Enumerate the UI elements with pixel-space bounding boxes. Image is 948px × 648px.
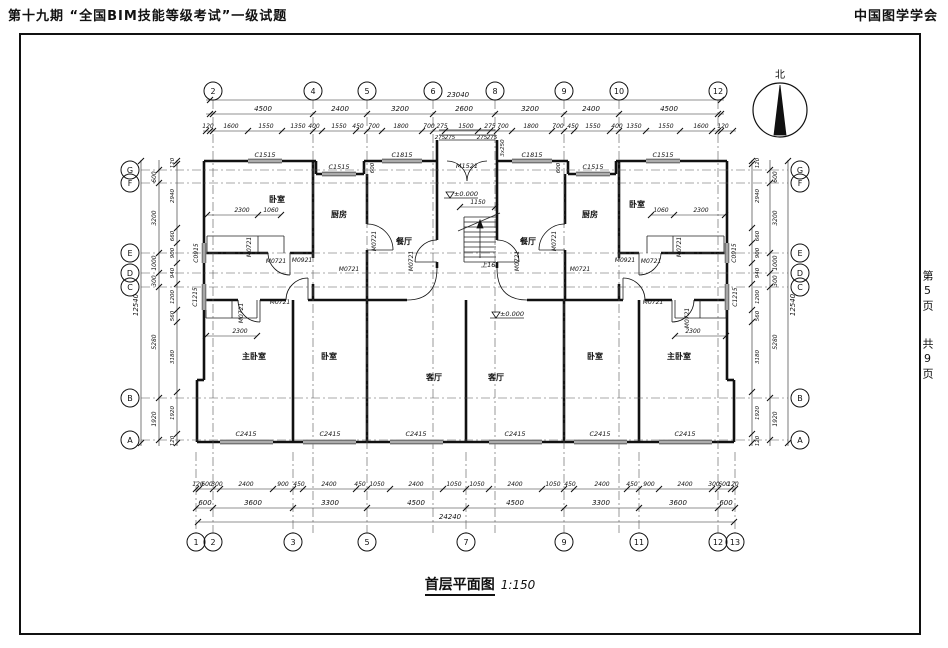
dimension-text: 3200 <box>391 105 409 113</box>
component-tag: C2415 <box>674 430 695 438</box>
dimension-text: 1350 <box>290 123 305 130</box>
component-tag: ±0.000 <box>454 190 478 198</box>
grid-bubble-label: 12 <box>713 87 723 96</box>
room-label: 主卧室 <box>242 351 266 361</box>
grid-bubble-label: C <box>797 283 803 292</box>
dimension-text: 1920 <box>170 406 176 420</box>
dimension-text: 1350 <box>626 123 641 130</box>
component-tag: M0721 <box>270 299 290 306</box>
dimension-text: 1000 <box>772 255 779 270</box>
dimension-text: 450 <box>293 481 305 488</box>
dimension-text: 1050 <box>545 481 560 488</box>
component-tag: C1515 <box>582 163 603 171</box>
dimension-text: 3300 <box>321 499 339 507</box>
grid-bubble-label: A <box>127 436 133 445</box>
grid-bubble-label: 9 <box>561 87 566 96</box>
dimension-text: 900 <box>170 247 176 258</box>
dimension-text: 2940 <box>755 189 761 203</box>
dimension-text: 900 <box>277 481 289 488</box>
drawing-title-block: 首层平面图1:150 <box>360 574 600 594</box>
dimension-text: 600 <box>556 162 562 173</box>
dimension-text: 600 <box>151 171 158 183</box>
component-tag: M0721 <box>238 303 245 323</box>
dimension-text: 1050 <box>369 481 384 488</box>
component-tag: M0721 <box>408 251 415 271</box>
room-label: 客厅 <box>487 372 504 382</box>
page-number: 第5页 <box>919 270 935 314</box>
grid-bubble-label: C <box>127 283 133 292</box>
floor-plan-canvas: 2456891012123579111213GFEDCBAGFEDCBA2304… <box>0 0 948 648</box>
dimension-text: 1600 <box>693 123 708 130</box>
dimension-text: 940 <box>170 267 176 278</box>
room-label: 卧室 <box>587 351 603 361</box>
dimension-text: 275 <box>487 135 498 141</box>
dimension-text: 3200 <box>772 210 779 225</box>
component-tag: C2415 <box>405 430 426 438</box>
drawing-scale: 1:150 <box>501 578 536 592</box>
dimension-text: 560 <box>755 310 761 321</box>
dimension-text: 600 <box>198 499 212 507</box>
dimension-text: 275 <box>436 123 448 130</box>
component-tag: M0721 <box>266 258 286 265</box>
dimension-text: 120 <box>727 481 739 488</box>
door-swing-arc <box>286 278 308 300</box>
dimension-text: 700 <box>368 123 380 130</box>
room-label: 卧室 <box>321 351 337 361</box>
dimension-text: 5280 <box>151 334 158 349</box>
dimension-text: 1550 <box>585 123 600 130</box>
grid-bubble-label: A <box>797 436 803 445</box>
dimension-text: 600 <box>719 499 733 507</box>
dimension-text: 24240 <box>439 513 462 521</box>
grid-bubble-label: 6 <box>430 87 435 96</box>
component-tag: C2415 <box>589 430 610 438</box>
dimension-text: 4500 <box>660 105 678 113</box>
grid-bubble-label: D <box>797 269 803 278</box>
component-tag: C1215 <box>732 287 739 307</box>
dimension-text: 2400 <box>331 105 349 113</box>
grid-bubble-label: 2 <box>210 538 215 547</box>
component-tag: C1515 <box>254 151 275 159</box>
dimension-text: 12540 <box>132 293 140 316</box>
dimension-text: 2400 <box>594 481 609 488</box>
component-tag: C0915 <box>193 243 200 263</box>
grid-bubble-label: F <box>798 179 803 188</box>
component-tag: M0721 <box>514 251 521 271</box>
grid-bubble-label: 5 <box>364 538 369 547</box>
dimension-text: 2300 <box>234 207 249 214</box>
dimension-text: 2400 <box>321 481 336 488</box>
dimension-text: 660 <box>755 230 761 241</box>
component-tag: M0721 <box>684 308 691 328</box>
dimension-text: 1150 <box>470 199 485 206</box>
room-label: 客厅 <box>425 372 442 382</box>
component-tag: ±0.000 <box>500 310 524 318</box>
grid-bubble-label: 5 <box>364 87 369 96</box>
dimension-text: 1060 <box>263 207 278 214</box>
room-label: 餐厅 <box>519 236 536 246</box>
dimension-text: 940 <box>755 267 761 278</box>
component-tag: C2415 <box>235 430 256 438</box>
component-tag: C2415 <box>319 430 340 438</box>
filled-symbol <box>477 220 483 228</box>
dimension-text: 400 <box>308 123 320 130</box>
dimension-text: 900 <box>643 481 655 488</box>
component-tag: M0721 <box>551 231 558 251</box>
dimension-text: 120 <box>202 123 214 130</box>
dimension-text: 120 <box>717 123 729 130</box>
dimension-text: 1060 <box>653 207 668 214</box>
grid-bubble-label: D <box>127 269 133 278</box>
grid-bubble-label: 11 <box>634 538 644 547</box>
dimension-text: 1050 <box>469 481 484 488</box>
dimension-text: 600 <box>370 162 376 173</box>
dimension-text: 2400 <box>677 481 692 488</box>
grid-bubble-label: 10 <box>614 87 624 96</box>
dimension-text: 3200 <box>521 105 539 113</box>
dimension-text: 1550 <box>258 123 273 130</box>
filled-symbol <box>774 85 786 135</box>
dimension-text: 275 <box>445 135 456 141</box>
dimension-text: 700 <box>497 123 509 130</box>
dimension-text: 450 <box>352 123 364 130</box>
dimension-text: 700 <box>423 123 435 130</box>
dimension-text: 1500 <box>458 123 473 130</box>
component-tag: M0721 <box>246 237 253 257</box>
dimension-text: 3x250 <box>500 139 506 157</box>
door-swing-arc <box>623 278 645 300</box>
component-tag: C1515 <box>328 163 349 171</box>
dimension-text: 3180 <box>755 350 761 364</box>
component-tag: C1815 <box>521 151 542 159</box>
dimension-text: 450 <box>626 481 638 488</box>
grid-bubble-label: F <box>128 179 133 188</box>
dimension-text: 1050 <box>446 481 461 488</box>
component-tag: M0921 <box>292 257 312 264</box>
dimension-text: 120 <box>170 157 176 168</box>
dimension-text: 3200 <box>151 210 158 225</box>
dimension-text: 120 <box>755 435 761 446</box>
dimension-text: 1600 <box>223 123 238 130</box>
dimension-text: 4500 <box>407 499 425 507</box>
grid-bubble-label: 1 <box>193 538 198 547</box>
grid-bubble-label: E <box>127 249 132 258</box>
component-tag: 上16 <box>481 261 496 269</box>
dimension-text: 450 <box>567 123 579 130</box>
dimension-text: 560 <box>170 310 176 321</box>
dimension-text: 3180 <box>170 350 176 364</box>
dimension-text: 5280 <box>772 334 779 349</box>
dimension-text: 2300 <box>685 328 700 335</box>
door-swing-arc <box>492 312 500 318</box>
grid-bubble-label: 8 <box>492 87 497 96</box>
page-total: 共9页 <box>919 338 935 382</box>
grid-bubble-label: E <box>797 249 802 258</box>
grid-bubble-label: 12 <box>713 538 723 547</box>
drawing-sheet: { "header": {"left": "第十九期 “全国BIM技能等级考试”… <box>0 0 948 648</box>
dimension-text: 2400 <box>238 481 253 488</box>
dimension-text: 4500 <box>254 105 272 113</box>
component-tag: C1815 <box>391 151 412 159</box>
dimension-text: 300 <box>772 275 779 287</box>
room-label: 卧室 <box>269 194 285 204</box>
component-tag: C2415 <box>504 430 525 438</box>
dimension-text: 300 <box>211 481 223 488</box>
dimension-text: 300 <box>151 275 158 287</box>
room-label: 餐厅 <box>395 236 412 246</box>
dimension-text: 1200 <box>755 290 761 304</box>
dimension-text: 120 <box>755 157 761 168</box>
grid-bubble-label: 2 <box>210 87 215 96</box>
dimension-text: 3300 <box>592 499 610 507</box>
dimension-text: 120 <box>170 435 176 446</box>
dimension-text: 1800 <box>393 123 408 130</box>
dimension-text: 2400 <box>408 481 423 488</box>
dimension-text: 2300 <box>232 328 247 335</box>
grid-bubble-label: 4 <box>310 87 315 96</box>
grid-bubble-label: 3 <box>290 538 295 547</box>
dimension-text: 1550 <box>331 123 346 130</box>
dimension-text: 1200 <box>170 290 176 304</box>
dimension-text: 2600 <box>455 105 473 113</box>
grid-bubble-label: G <box>127 166 133 175</box>
grid-bubble-label: 7 <box>463 538 468 547</box>
dimension-text: 1920 <box>755 406 761 420</box>
dimension-text: 3600 <box>244 499 262 507</box>
component-tag: M0721 <box>641 258 661 265</box>
component-tag: M0921 <box>615 257 635 264</box>
component-tag: M0721 <box>676 237 683 257</box>
component-tag: C1515 <box>652 151 673 159</box>
dimension-text: 275 <box>484 123 496 130</box>
component-tag: M0721 <box>570 266 590 273</box>
component-tag: C0915 <box>731 243 738 263</box>
dimension-text: 450 <box>354 481 366 488</box>
dimension-text: 4500 <box>506 499 524 507</box>
room-label: 卧室 <box>629 199 645 209</box>
component-tag: M0721 <box>371 231 378 251</box>
grid-bubble-label: B <box>797 394 803 403</box>
component-tag: M1521 <box>456 162 478 170</box>
drawing-title: 首层平面图 <box>425 577 495 596</box>
room-label: 厨房 <box>331 209 347 219</box>
dimension-text: 2400 <box>507 481 522 488</box>
dimension-text: 600 <box>772 171 779 183</box>
dimension-text: 12540 <box>789 293 797 316</box>
dimension-text: 450 <box>564 481 576 488</box>
dimension-text: 400 <box>611 123 623 130</box>
dimension-text: 1800 <box>523 123 538 130</box>
dimension-text: 1920 <box>151 411 158 426</box>
dimension-text: 3600 <box>669 499 687 507</box>
dimension-text: 660 <box>170 230 176 241</box>
room-label: 主卧室 <box>667 351 691 361</box>
dimension-text: 900 <box>755 247 761 258</box>
room-label: 厨房 <box>582 209 598 219</box>
dimension-text: 1550 <box>658 123 673 130</box>
dimension-text: 23040 <box>447 91 470 99</box>
component-tag: C1215 <box>192 287 199 307</box>
component-tag: M0721 <box>643 299 663 306</box>
dimension-text: 700 <box>552 123 564 130</box>
grid-bubble-label: B <box>127 394 133 403</box>
door-swing-arc <box>446 192 454 198</box>
grid-bubble-label: G <box>797 166 803 175</box>
dimension-text: 1000 <box>151 255 158 270</box>
grid-bubble-label: 9 <box>561 538 566 547</box>
dimension-text: 2400 <box>582 105 600 113</box>
dimension-text: 2300 <box>693 207 708 214</box>
grid-bubble-label: 13 <box>730 538 740 547</box>
north-label: 北 <box>775 69 785 81</box>
dimension-text: 1920 <box>772 411 779 426</box>
dimension-text: 2940 <box>170 189 176 203</box>
component-tag: M0721 <box>339 266 359 273</box>
door-swing-arc <box>415 240 437 262</box>
